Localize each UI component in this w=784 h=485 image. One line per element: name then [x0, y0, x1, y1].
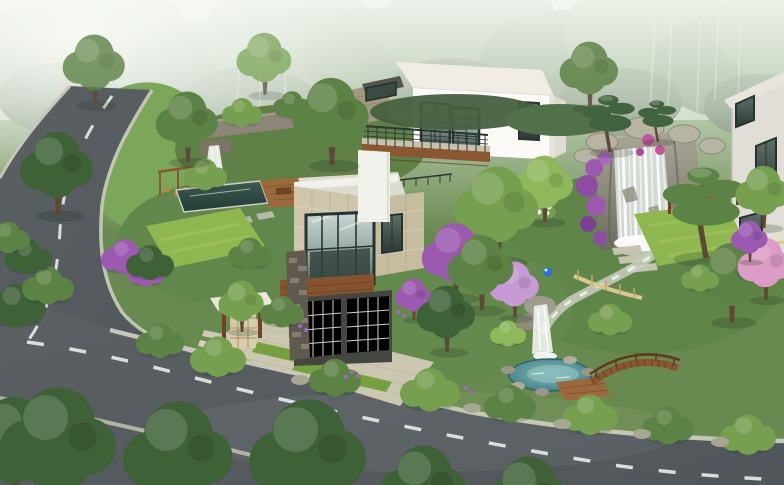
lounge-chair [276, 187, 291, 195]
villa-rendering [0, 0, 784, 485]
blue-ornament [544, 268, 553, 277]
white-column [358, 150, 390, 222]
rendering-canvas [0, 0, 784, 485]
garage-door [347, 296, 389, 353]
